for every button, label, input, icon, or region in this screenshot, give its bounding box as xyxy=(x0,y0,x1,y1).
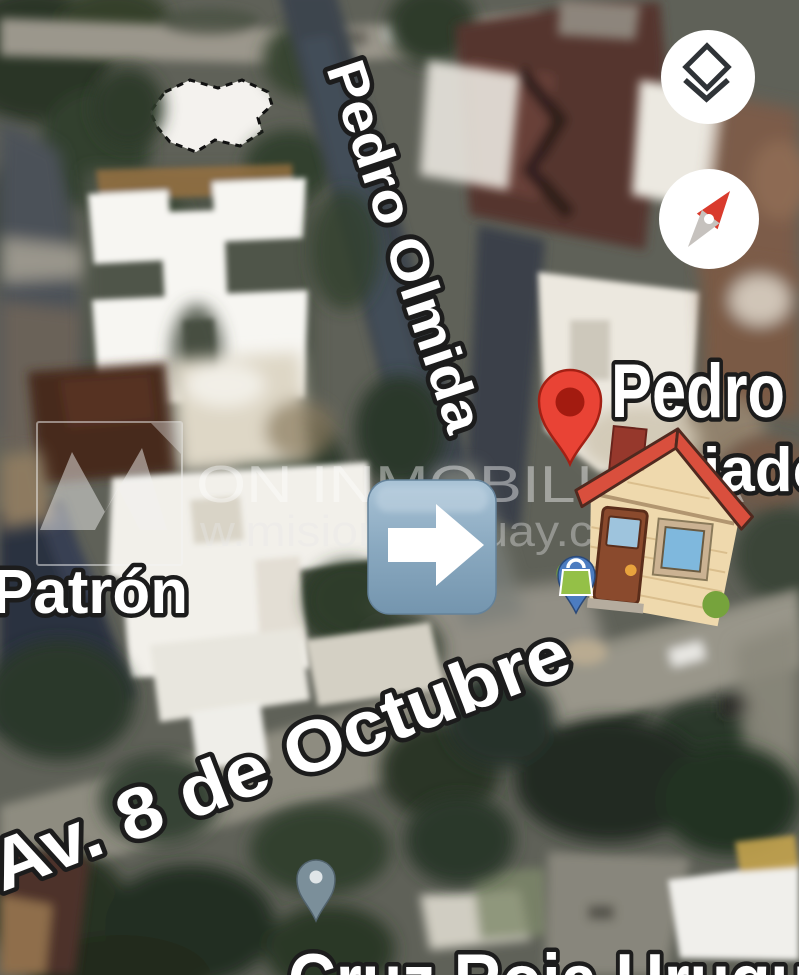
svg-text:Cruz Roja Urugua: Cruz Roja Urugua xyxy=(288,939,799,975)
svg-text:Patrón: Patrón xyxy=(0,558,188,627)
svg-text:Pedro: Pedro xyxy=(611,349,785,434)
